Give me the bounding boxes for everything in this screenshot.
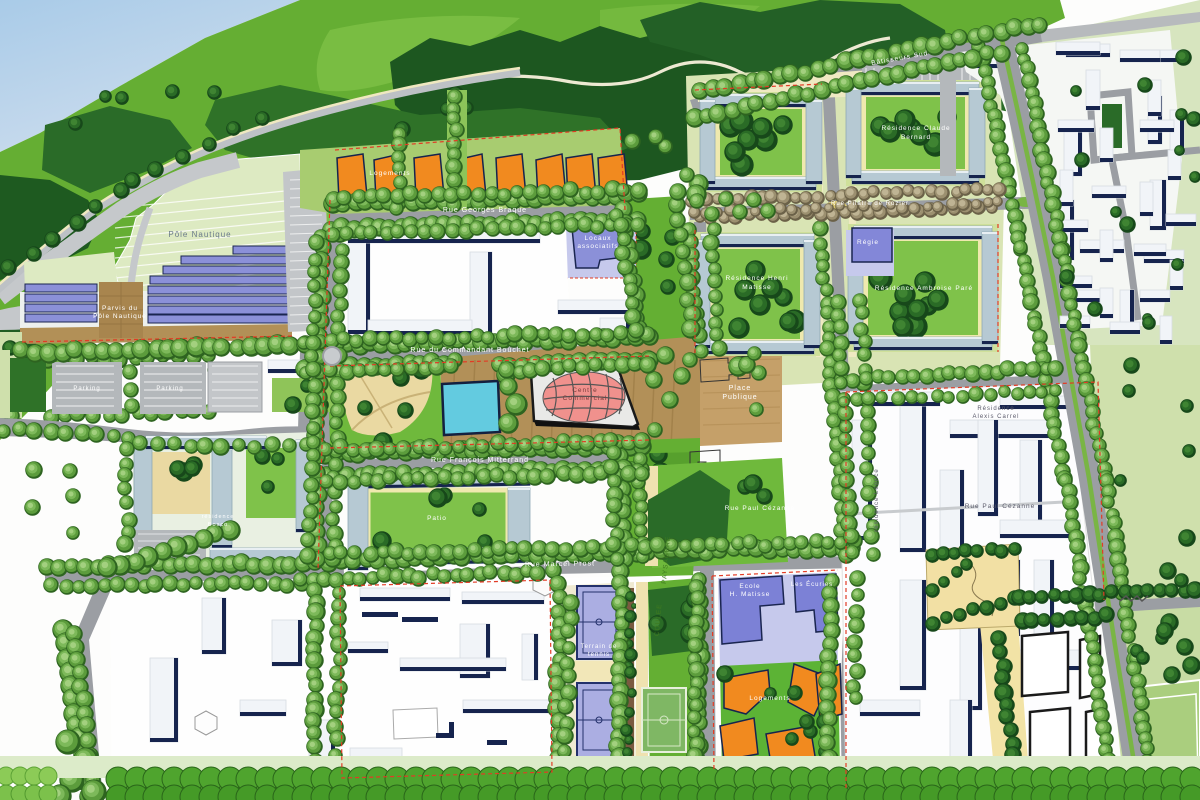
svg-text:Rue Paul Cézanne: Rue Paul Cézanne bbox=[965, 503, 1036, 510]
svg-text:Régie: Régie bbox=[857, 239, 879, 246]
svg-text:Locaux: Locaux bbox=[585, 235, 612, 242]
svg-text:résidence Leonce: résidence Leonce bbox=[874, 468, 880, 531]
svg-text:Centre: Centre bbox=[572, 387, 598, 394]
svg-text:Patio: Patio bbox=[427, 515, 447, 522]
svg-text:Matisse: Matisse bbox=[742, 284, 771, 291]
svg-text:Rue François Mitterrand: Rue François Mitterrand bbox=[431, 457, 529, 464]
svg-text:Résidence: Résidence bbox=[977, 406, 1014, 412]
svg-text:Rue Pilâtre de Rozier: Rue Pilâtre de Rozier bbox=[831, 201, 909, 207]
svg-text:Commercial: Commercial bbox=[563, 395, 608, 402]
svg-text:Les Écuries: Les Écuries bbox=[791, 581, 833, 588]
svg-text:Publique: Publique bbox=[722, 394, 757, 401]
svg-text:Pôle Nautique: Pôle Nautique bbox=[93, 313, 147, 320]
svg-text:H. Matisse: H. Matisse bbox=[730, 591, 771, 598]
svg-text:Rue Paul Cézanne: Rue Paul Cézanne bbox=[725, 505, 796, 512]
svg-text:Terrain de: Terrain de bbox=[581, 644, 618, 650]
svg-text:Bosco: Bosco bbox=[208, 522, 228, 528]
svg-text:Rue Georges Braque: Rue Georges Braque bbox=[443, 207, 527, 214]
svg-text:Parking: Parking bbox=[73, 386, 100, 392]
svg-text:Pôle Nautique: Pôle Nautique bbox=[168, 230, 231, 239]
svg-text:Logements: Logements bbox=[369, 170, 410, 177]
svg-text:résidence: résidence bbox=[202, 514, 235, 520]
svg-text:Place: Place bbox=[729, 385, 752, 392]
svg-text:Logements: Logements bbox=[749, 695, 790, 702]
svg-text:Résidence Henri: Résidence Henri bbox=[725, 275, 788, 282]
svg-text:Parvis du: Parvis du bbox=[102, 305, 138, 312]
svg-text:Résidence Ambroise Paré: Résidence Ambroise Paré bbox=[875, 285, 973, 292]
svg-text:Ecole: Ecole bbox=[739, 583, 760, 590]
svg-text:associatifs: associatifs bbox=[577, 243, 618, 250]
svg-text:Bernard: Bernard bbox=[901, 134, 931, 141]
svg-text:Parking: Parking bbox=[156, 386, 183, 392]
svg-text:Alexis Carrel: Alexis Carrel bbox=[972, 414, 1019, 420]
svg-text:tennis: tennis bbox=[588, 652, 610, 658]
svg-text:Rue Marcel Prost: Rue Marcel Prost bbox=[525, 560, 595, 568]
svg-text:Rue du Commandant Bouchet: Rue du Commandant Bouchet bbox=[410, 347, 529, 354]
svg-text:Résidence Claude: Résidence Claude bbox=[881, 125, 950, 132]
